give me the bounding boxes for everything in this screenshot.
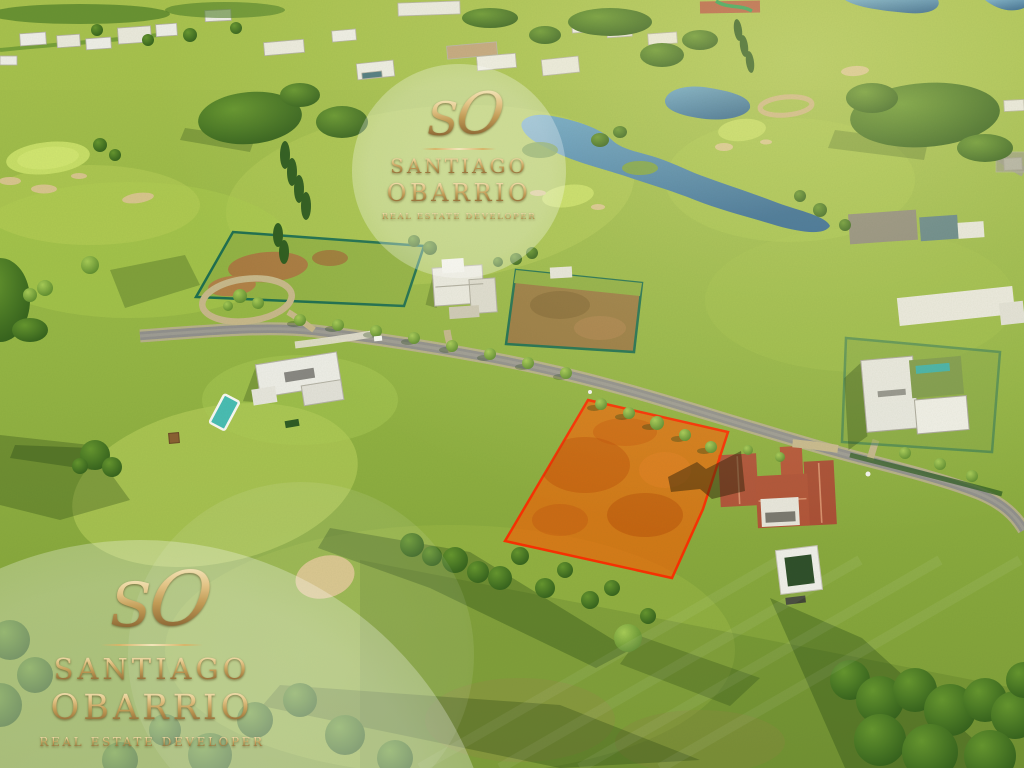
brand-tagline: REAL ESTATE DEVELOPER [344, 212, 574, 222]
so-monogram-logo: S O [90, 562, 214, 642]
logo-divider [422, 148, 496, 150]
monogram-letter-o: O [453, 86, 508, 143]
aerial-photo: S O SANTIAGO OBARRIO REAL ESTATE DEVELOP… [0, 0, 1024, 768]
brand-first-name: SANTIAGO [0, 652, 312, 686]
logo-divider [101, 644, 203, 646]
brand-last-name: OBARRIO [0, 688, 312, 728]
so-monogram-logo: S O [413, 86, 505, 146]
brand-first-name: SANTIAGO [344, 154, 574, 178]
monogram-letter-o: O [145, 562, 217, 637]
brand-tagline: REAL ESTATE DEVELOPER [0, 735, 312, 749]
brand-last-name: OBARRIO [344, 179, 574, 207]
